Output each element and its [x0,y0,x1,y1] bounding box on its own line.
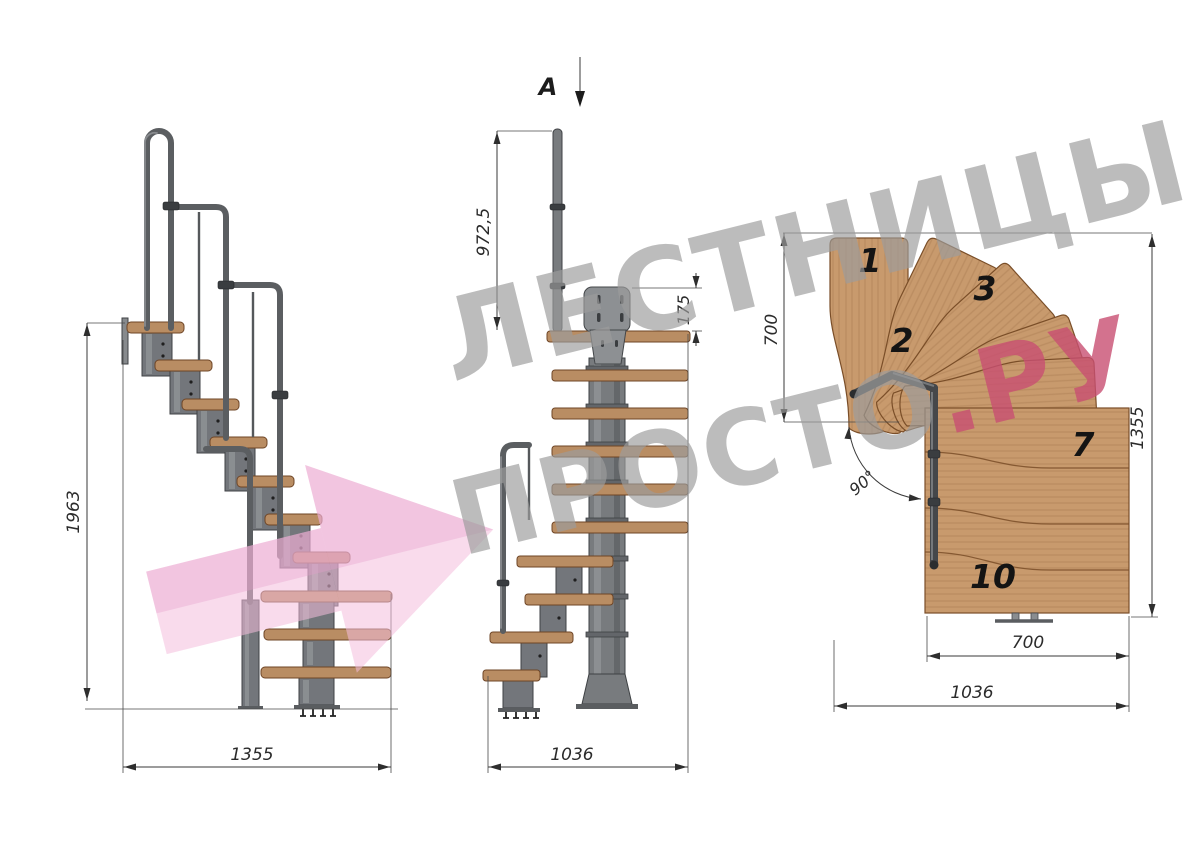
tread-number-10: 10 [970,557,1016,596]
plan-outer-width-label: 1036 [950,683,993,703]
front-width-label: 1036 [550,745,593,765]
floor-bracket [995,613,1053,621]
front-handrail-label: 972,5 [474,208,494,257]
staircase-drawing-page: 1963 1355 A [0,0,1200,849]
watermark: ЛЕСТНИЦЫ ПРОСТО.РУ [130,95,1200,716]
technical-drawing-canvas: 1963 1355 A [0,0,1200,849]
side-elevation-view: 1963 1355 [64,131,398,773]
side-height-label: 1963 [64,490,84,533]
section-label: A [537,73,558,101]
anchor-bolts [300,709,336,716]
side-width-label: 1355 [230,745,273,765]
tread-number-7: 7 [1072,425,1095,464]
plan-inner-width-label: 700 [1012,633,1044,653]
section-arrow-icon: A [537,57,585,107]
side-height-dimension: 1963 [64,323,125,701]
